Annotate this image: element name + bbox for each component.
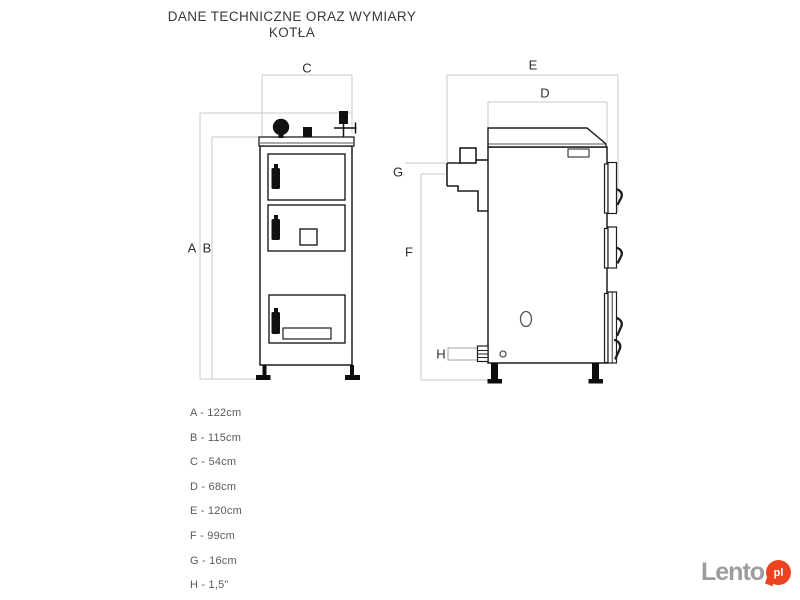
lento-logo-bubble-icon: pl [766, 560, 791, 585]
dim-label-g: G [393, 165, 403, 180]
side-view [405, 75, 622, 384]
legend-item-c: C - 54cm [190, 450, 242, 475]
dim-label-c: C [302, 61, 311, 76]
dimension-legend: A - 122cm B - 115cm C - 54cm D - 68cm E … [190, 401, 242, 598]
dim-label-f: F [405, 245, 413, 260]
lento-logo-suffix: pl [774, 567, 784, 579]
flue-outlet [447, 148, 488, 211]
safety-valve [334, 111, 357, 137]
legend-item-e: E - 120cm [190, 499, 242, 524]
front-view [200, 75, 360, 380]
thermometer-gauge [273, 119, 289, 138]
air-intake-slot [283, 328, 331, 339]
dim-label-b: B [203, 241, 212, 256]
dim-label-e: E [529, 58, 538, 73]
drain-connection [448, 346, 488, 362]
boiler-technical-drawing [0, 0, 800, 600]
lento-watermark: Lento pl [701, 558, 791, 587]
front-top-plate [259, 137, 354, 146]
legend-item-b: B - 115cm [190, 426, 242, 451]
legend-item-a: A - 122cm [190, 401, 242, 426]
side-boiler-body [488, 147, 607, 363]
legend-item-f: F - 99cm [190, 524, 242, 549]
name-plate [568, 149, 589, 157]
dim-label-d: D [540, 86, 549, 101]
front-feet [256, 365, 360, 380]
boiler-spec-image: DANE TECHNICZNE ORAZ WYMIARY KOTŁA [0, 0, 800, 600]
side-door-edges [605, 163, 617, 364]
lento-logo-text: Lento [701, 558, 764, 587]
legend-item-h: H - 1,5" [190, 573, 242, 598]
dim-label-h: H [436, 347, 445, 362]
side-legs [488, 363, 604, 384]
legend-item-g: G - 16cm [190, 549, 242, 574]
dim-label-a: A [188, 241, 197, 256]
top-cap-fitting [303, 127, 312, 137]
middle-door-window [300, 229, 317, 245]
legend-item-d: D - 68cm [190, 475, 242, 500]
